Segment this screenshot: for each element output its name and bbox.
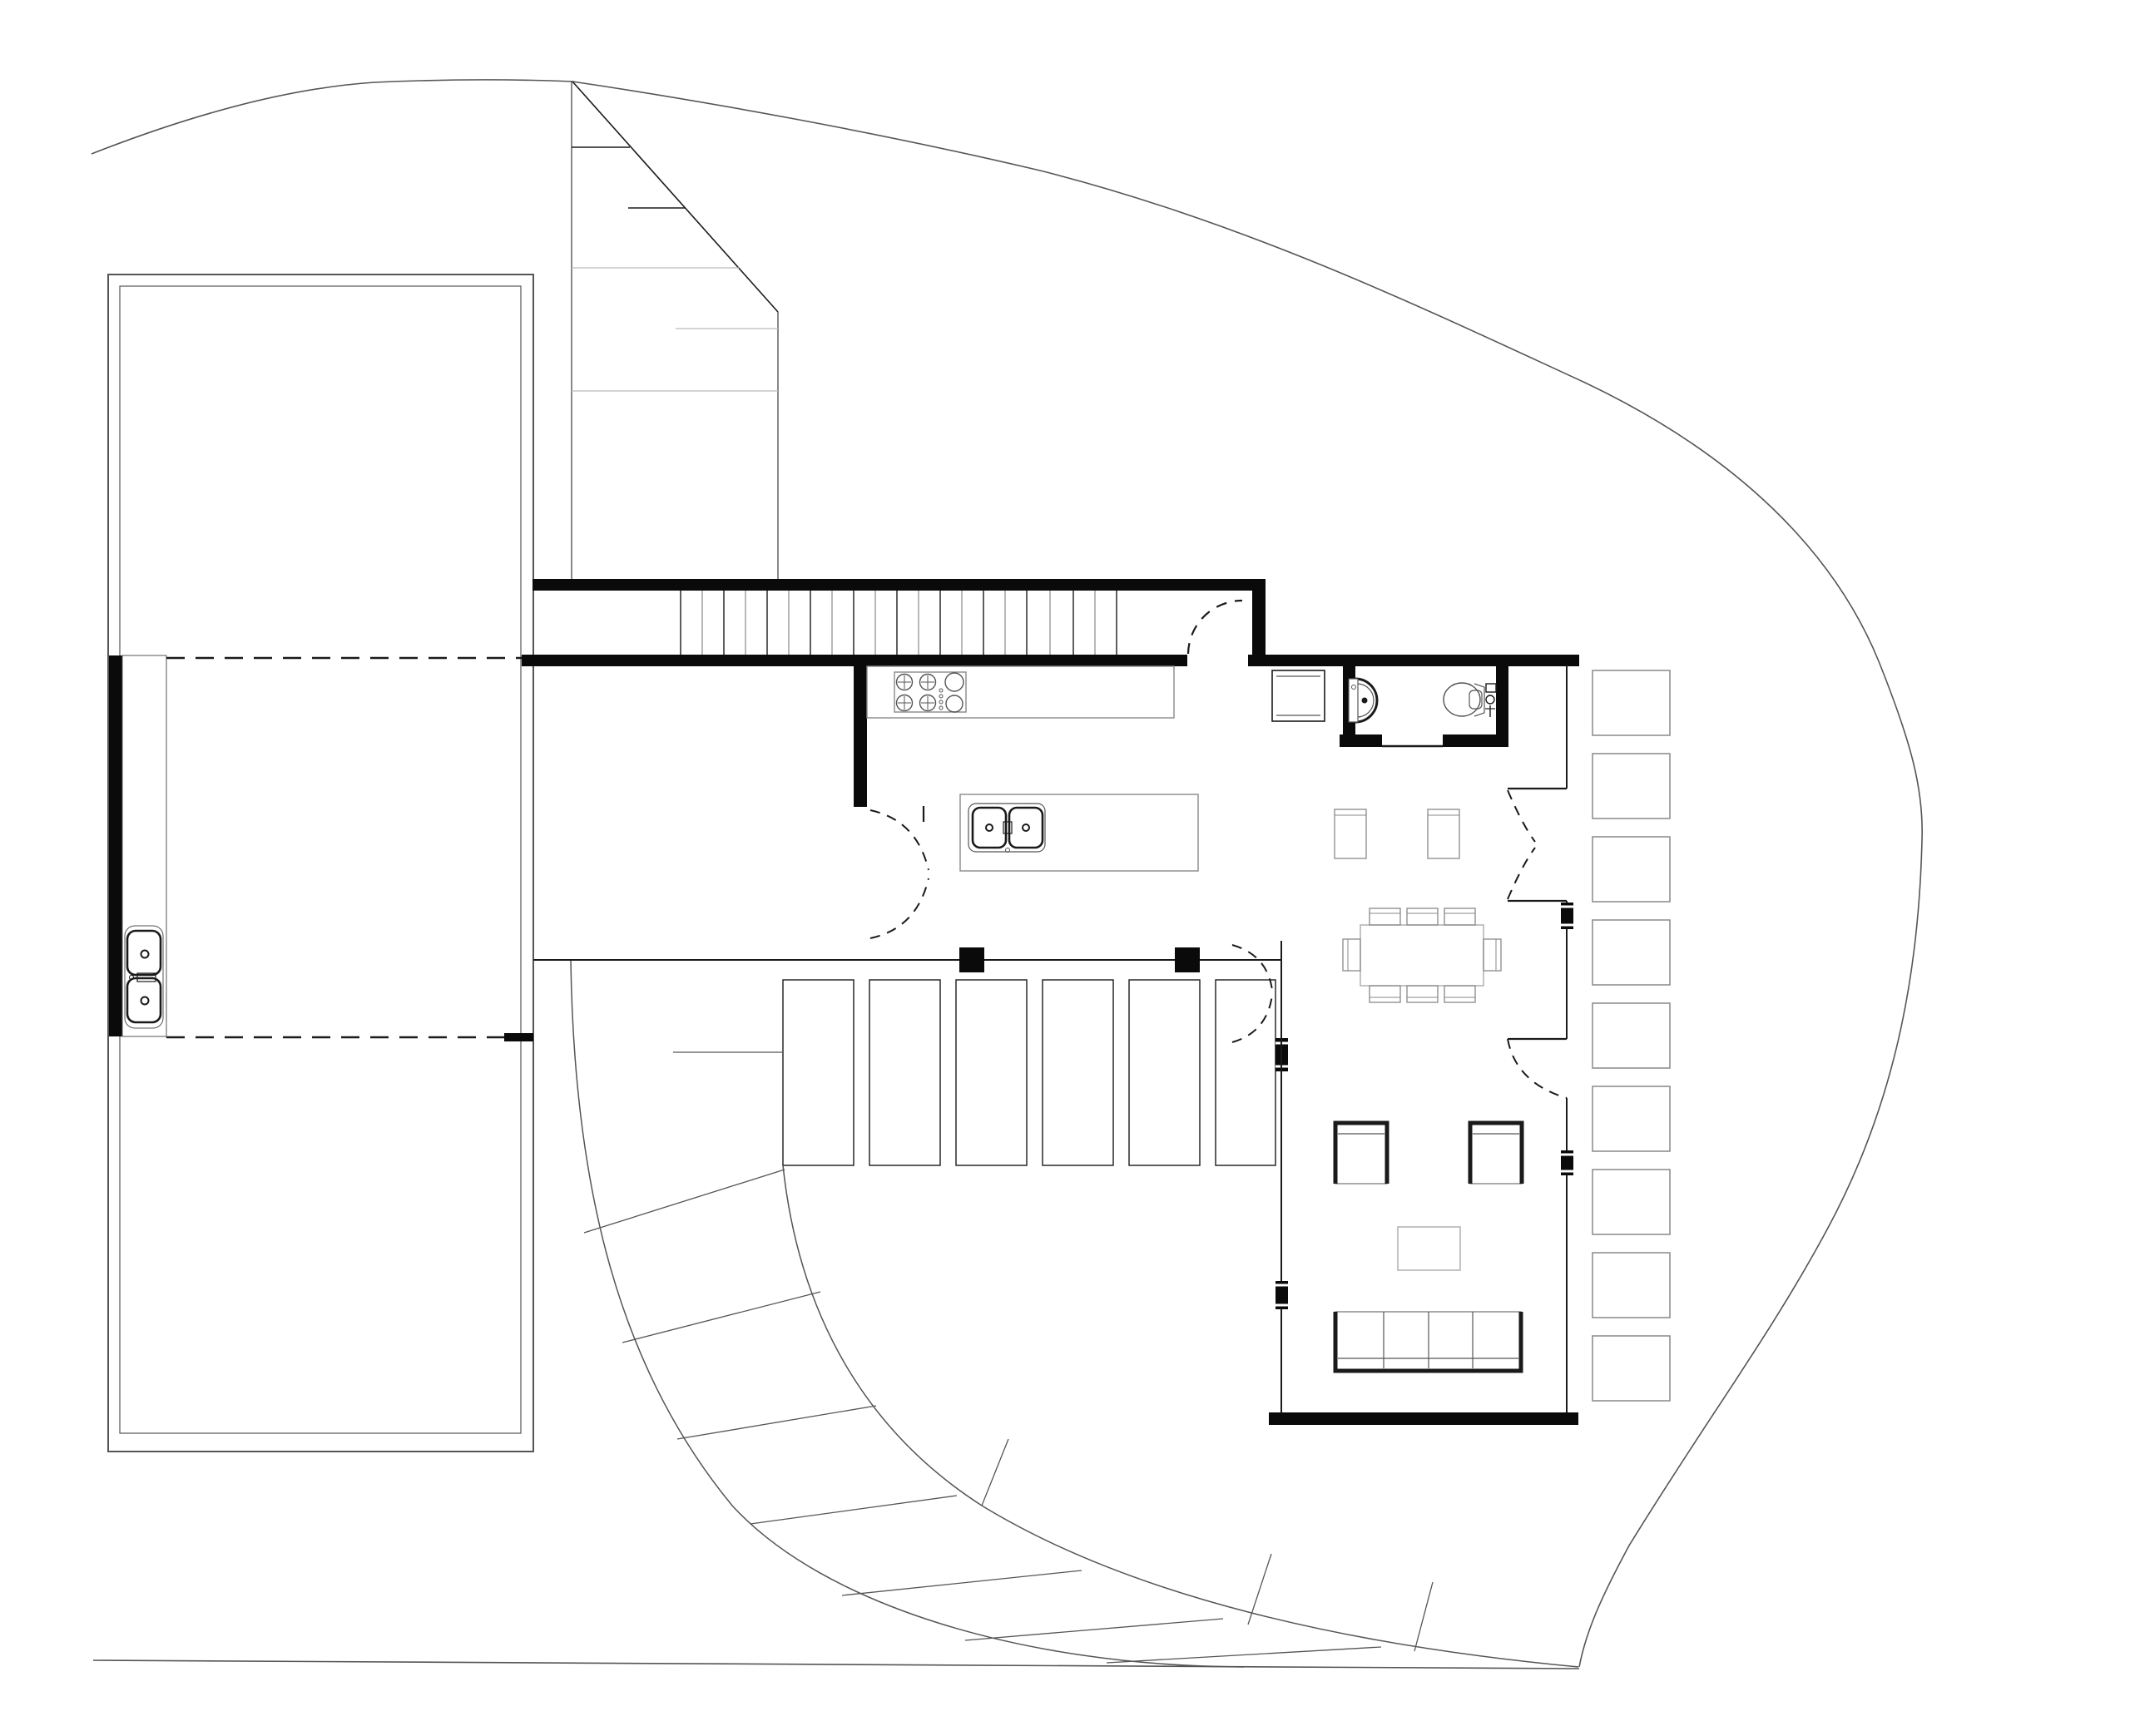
stepping-pavers-shape [1593, 837, 1670, 902]
dining-set-shape [1444, 908, 1475, 925]
curved-stair-shape [622, 1292, 820, 1343]
stepping-pavers-shape [1593, 1336, 1670, 1401]
living-armchairs-shape [1335, 1123, 1387, 1184]
curved-stair-shape [1248, 1554, 1271, 1625]
curved-stair-shape [982, 1439, 1008, 1506]
kitchen-shape [939, 706, 943, 710]
outdoor-sink-shape [127, 931, 161, 975]
bridge-corridor-shape [504, 1033, 533, 1041]
curved-stair-shape [842, 1570, 1082, 1595]
stair-walls-shape [532, 579, 1266, 591]
deck-french-door-shape [1232, 995, 1272, 1042]
curved-stair-shape [750, 1496, 957, 1524]
pool-shape [108, 274, 533, 1452]
dining-set-shape [1343, 939, 1360, 971]
dining-set-shape [1370, 986, 1400, 1002]
deck-planks-shape [956, 980, 1027, 1165]
stepping-pavers-shape [1593, 1253, 1670, 1318]
outdoor-sink [125, 926, 163, 1028]
deck-planks-shape [1216, 980, 1276, 1165]
kitchen-shape [854, 655, 867, 807]
living-armchairs-shape [1470, 1123, 1522, 1184]
kitchen-shape [939, 689, 943, 692]
kitchen-shape [939, 700, 943, 704]
stepping-pavers-shape [1593, 1086, 1670, 1151]
curved-stair-shape [571, 961, 1244, 1667]
dining-set-shape [1444, 986, 1475, 1002]
stepping-pavers-shape [1593, 1170, 1670, 1234]
kitchen [854, 655, 1174, 807]
outdoor-sink-shape [125, 926, 163, 1028]
curved-stair-shape [965, 1619, 1223, 1640]
deck-planks [783, 980, 1276, 1165]
outdoor-sink-shape [127, 978, 161, 1022]
dining-set-shape [1370, 908, 1400, 925]
dining-set-shape [1407, 986, 1438, 1002]
deck-edge-shape [1175, 947, 1200, 972]
bathroom-shape [1496, 665, 1508, 747]
living-door-shape [1508, 1039, 1567, 1098]
dining-french-door-shape [1508, 790, 1535, 842]
deck-planks-shape [869, 980, 940, 1165]
entry-fridge-shape [1272, 670, 1325, 721]
curved-stair-shape [1414, 1582, 1433, 1651]
outdoor-sink-shape [141, 997, 149, 1005]
kitchen-island-shape [1023, 824, 1029, 831]
curved-stair-shape [677, 1406, 876, 1439]
south-wall [1269, 1412, 1578, 1425]
curved-stair-shape [584, 1170, 785, 1233]
kitchen-island-shape [960, 794, 1198, 871]
bathroom-shape [1340, 734, 1382, 747]
kitchen-island-shape [986, 824, 993, 831]
kitchen-shape [939, 695, 943, 698]
toilet-shape [1486, 695, 1494, 704]
kitchen-entry-doors-shape [870, 878, 929, 938]
deck-french-door [1232, 945, 1288, 1071]
dining-set-shape [1360, 925, 1484, 986]
curved-stair [571, 961, 1578, 1667]
stair-landing-door-shape [1188, 601, 1242, 654]
sideboards [1335, 809, 1459, 858]
stepping-pavers-shape [1593, 920, 1670, 985]
living-armchairs [1335, 1123, 1522, 1184]
west-living-wall [1276, 941, 1288, 1412]
deck-planks-shape [1129, 980, 1200, 1165]
dining-set-shape [1407, 908, 1438, 925]
stair-walls-shape [1252, 590, 1266, 655]
sideboards-shape [1335, 809, 1366, 858]
stepping-pavers-shape [1593, 1003, 1670, 1068]
bathroom-sink-shape [1362, 698, 1368, 704]
pool-shape [120, 286, 521, 1433]
entry-fridge [1272, 670, 1325, 721]
dining-french-door [1508, 789, 1567, 901]
bathroom [1340, 665, 1508, 747]
site-boundary-shape [93, 1660, 1579, 1669]
coffee-table-shape [1398, 1227, 1460, 1270]
stepping-pavers-shape [1593, 754, 1670, 819]
stepping-pavers-shape [1593, 670, 1670, 735]
coffee-table [1398, 1227, 1460, 1270]
stair-walls-shape [1248, 655, 1579, 666]
stepping-pavers [1593, 670, 1670, 1401]
bridge-corridor [109, 655, 533, 1041]
living-armchairs-shape [1470, 1123, 1522, 1184]
outdoor-sink-shape [141, 951, 149, 958]
south-wall-shape [1269, 1412, 1578, 1425]
kitchen-shape [894, 672, 966, 712]
deck-edge-shape [959, 947, 984, 972]
floor-plan-page [0, 0, 2130, 1736]
kitchen-island-shape [973, 808, 1006, 848]
stair-landing-door [1188, 601, 1242, 654]
toilet-shape [1486, 684, 1496, 692]
living-door [1508, 1039, 1567, 1098]
toilet [1444, 683, 1496, 717]
deck-french-door-shape [1232, 945, 1272, 990]
sofa [1335, 1312, 1521, 1371]
hill-terraces [572, 82, 778, 580]
kitchen-island-shape [1009, 808, 1043, 848]
floor-plan-drawing [0, 0, 2130, 1736]
hill-terraces-shape [572, 82, 778, 312]
curved-stair-shape [1107, 1647, 1381, 1663]
deck-planks-shape [783, 980, 854, 1165]
living-armchairs-shape [1335, 1123, 1387, 1184]
kitchen-island-shape [1003, 822, 1012, 833]
bridge-corridor-shape [109, 655, 122, 1036]
dining-set-shape [1484, 939, 1501, 971]
dining-french-door-shape [1508, 848, 1535, 899]
toilet-shape [1444, 683, 1480, 716]
kitchen-entry-doors [870, 806, 929, 938]
bathroom-shape [1443, 734, 1496, 747]
sideboards-shape [1428, 809, 1459, 858]
dining-set [1343, 908, 1501, 1002]
site-boundary [92, 80, 1922, 1669]
deck-edge [533, 947, 1281, 972]
pool [108, 274, 533, 1452]
staircase [681, 591, 1117, 655]
kitchen-shape [867, 666, 1174, 718]
kitchen-shape [946, 695, 963, 712]
kitchen-entry-doors-shape [870, 810, 929, 870]
site-boundary-shape [92, 80, 1922, 1667]
kitchen-island [960, 794, 1198, 871]
kitchen-shape [945, 673, 963, 691]
bathroom-sink [1349, 679, 1377, 722]
deck-planks-shape [1043, 980, 1113, 1165]
